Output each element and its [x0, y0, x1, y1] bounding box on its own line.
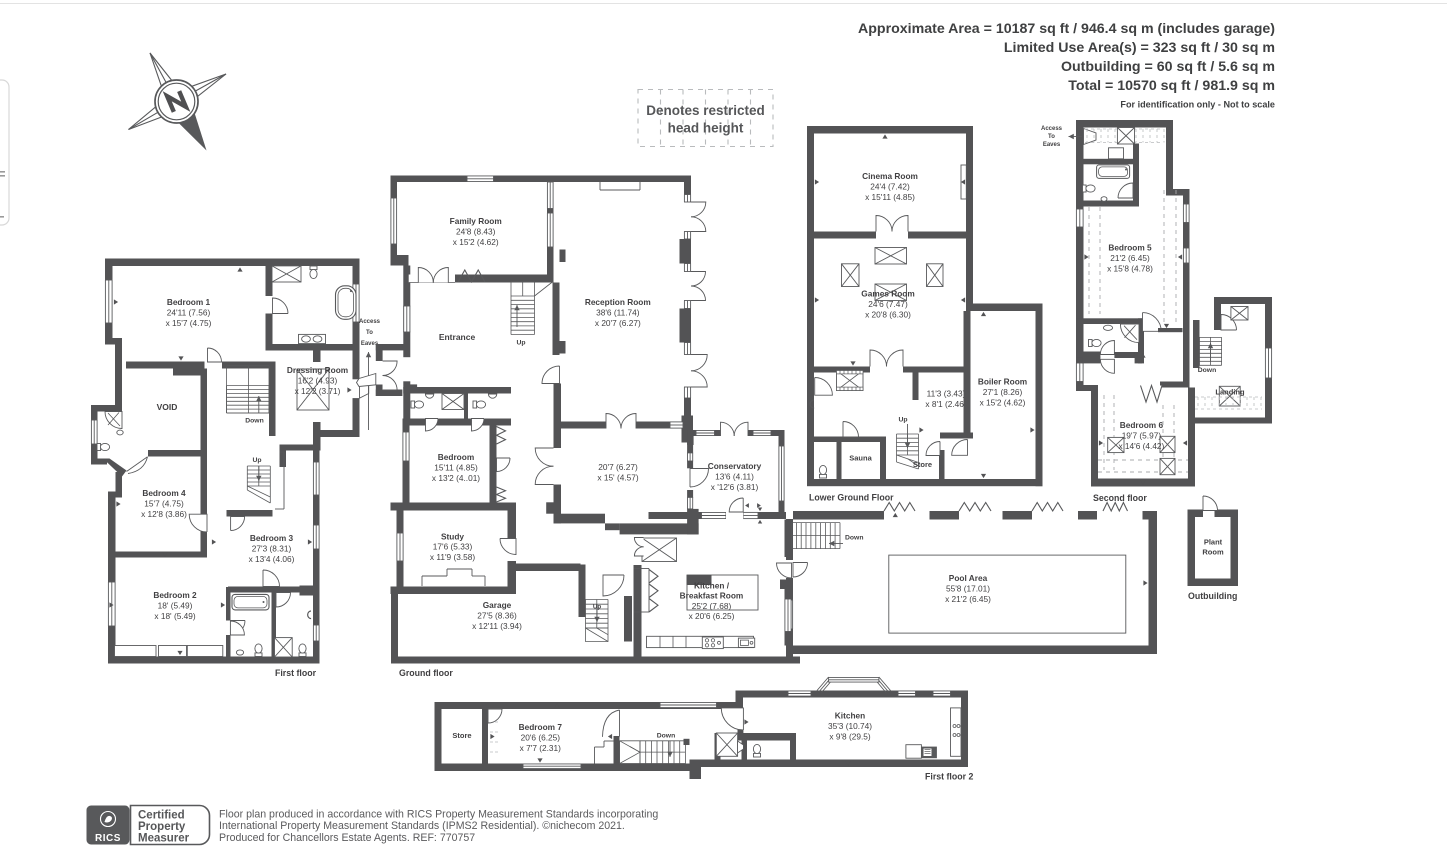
svg-text:Cinema Room24'4 (7.42)x 15'11: Cinema Room24'4 (7.42)x 15'11 (4.85) [862, 171, 918, 202]
svg-text:Entrance: Entrance [439, 332, 476, 342]
svg-text:Outbuilding = 60 sq ft / 5.6 s: Outbuilding = 60 sq ft / 5.6 sq m [1061, 59, 1275, 75]
svg-text:Second floor: Second floor [1093, 493, 1147, 503]
svg-text:Bedroom 327'3 (8.31)x 13'4 (4.: Bedroom 327'3 (8.31)x 13'4 (4.06) [249, 533, 295, 564]
svg-text:Access: Access [359, 319, 381, 325]
svg-text:Store: Store [452, 731, 471, 740]
svg-text:Limited Use Area(s) = 323 sq f: Limited Use Area(s) = 323 sq ft / 30 sq … [1004, 40, 1275, 56]
svg-text:Bedroom 218' (5.49)x 18' (5.49: Bedroom 218' (5.49)x 18' (5.49) [153, 590, 197, 621]
svg-text:Down: Down [1198, 367, 1217, 374]
svg-text:For identification only - Not: For identification only - Not to scale [1120, 100, 1275, 110]
svg-text:Bedroom 124'11 (7.56)x 15'7 (4: Bedroom 124'11 (7.56)x 15'7 (4.75) [166, 297, 212, 328]
svg-text:Up: Up [252, 457, 261, 464]
svg-text:Total = 10570 sq ft / 981.9 sq: Total = 10570 sq ft / 981.9 sq m [1068, 78, 1275, 94]
svg-text:RICS: RICS [95, 833, 121, 844]
svg-text:Lower Ground Floor: Lower Ground Floor [809, 493, 894, 503]
svg-text:Conservatory13'6 (4.11)x '12'6: Conservatory13'6 (4.11)x '12'6 (3.81) [708, 461, 762, 492]
svg-text:Eaves: Eaves [1043, 142, 1061, 148]
svg-text:First floor 2: First floor 2 [925, 772, 973, 782]
svg-text:Up: Up [898, 417, 907, 424]
svg-text:To: To [1048, 134, 1055, 140]
svg-text:Down: Down [245, 418, 264, 425]
svg-text:20'7 (6.27)x 15' (4.57): 20'7 (6.27)x 15' (4.57) [597, 462, 638, 482]
svg-text:Store: Store [913, 460, 932, 469]
svg-text:Landing: Landing [1215, 388, 1245, 397]
svg-text:Bedroom15'11 (4.85)x 13'2 (4..: Bedroom15'11 (4.85)x 13'2 (4..01) [432, 452, 480, 483]
svg-text:To: To [366, 330, 373, 336]
svg-text:Plant: Plant [1204, 538, 1223, 547]
svg-text:Approximate Area = 10187 sq ft: Approximate Area = 10187 sq ft / 946.4 s… [858, 21, 1275, 37]
svg-text:Outbuilding: Outbuilding [1188, 591, 1237, 601]
svg-text:Bedroom 720'6 (6.25)x 7'7 (2.3: Bedroom 720'6 (6.25)x 7'7 (2.31) [519, 722, 563, 753]
svg-text:Bedroom 521'2 (6.45)x 15'8 (4.: Bedroom 521'2 (6.45)x 15'8 (4.78) [1107, 243, 1153, 274]
svg-text:11'3 (3.43)x 8'1 (2.46): 11'3 (3.43)x 8'1 (2.46) [925, 389, 966, 409]
svg-text:Games Room24'6 (7.47)x 20'8 (6: Games Room24'6 (7.47)x 20'8 (6.30) [861, 289, 914, 320]
svg-text:Bedroom 415'7 (4.75)x 12'8 (3.: Bedroom 415'7 (4.75)x 12'8 (3.86) [141, 488, 187, 519]
svg-text:Down: Down [657, 733, 676, 740]
svg-text:Access: Access [1041, 126, 1063, 132]
svg-text:Ground floor: Ground floor [399, 668, 453, 678]
svg-text:Boiler Room27'1 (8.26)x 15'2 (: Boiler Room27'1 (8.26)x 15'2 (4.62) [978, 377, 1027, 408]
svg-text:Pool Area55'8 (17.01)x 21'2 (6: Pool Area55'8 (17.01)x 21'2 (6.45) [945, 573, 991, 604]
svg-text:Up: Up [516, 340, 525, 347]
svg-text:First floor: First floor [275, 668, 317, 678]
svg-text:Room: Room [1202, 548, 1224, 557]
svg-text:Down: Down [845, 535, 864, 542]
svg-text:Sauna: Sauna [849, 454, 872, 463]
svg-text:CertifiedPropertyMeasurer: CertifiedPropertyMeasurer [138, 810, 190, 845]
svg-text:Family Room24'8 (8.43)x 15'2 (: Family Room24'8 (8.43)x 15'2 (4.62) [450, 216, 502, 247]
svg-text:VOID: VOID [157, 402, 178, 412]
svg-text:Bedroom 619'7 (5.97)x 14'6 (4.: Bedroom 619'7 (5.97)x 14'6 (4.42) [1118, 420, 1164, 451]
